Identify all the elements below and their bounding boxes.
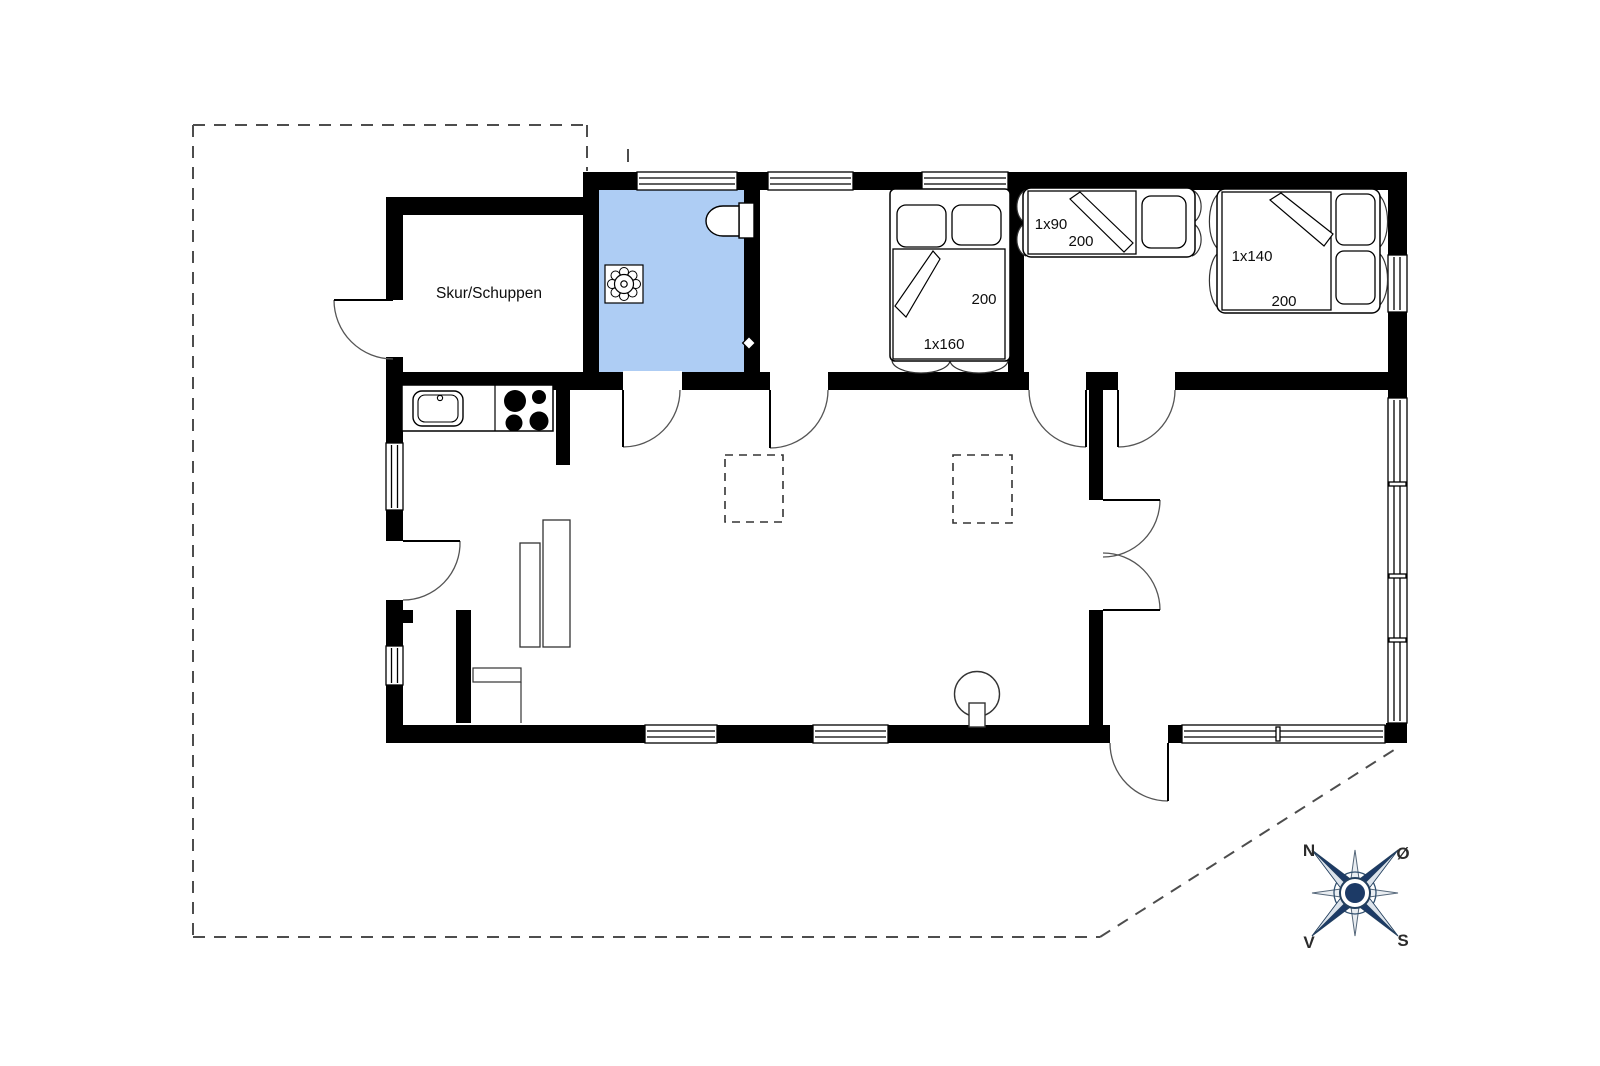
- floor-plan-drawing: Skur/Schuppen 200 1x160 1x90 200: [0, 0, 1600, 1066]
- shed-label: Skur/Schuppen: [436, 285, 542, 302]
- floor-plan-page: Skur/Schuppen 200 1x160 1x90 200: [0, 0, 1600, 1066]
- bed-length-label: 200: [971, 291, 996, 308]
- door-bedroom2: [1029, 390, 1086, 447]
- wall-right-mid: [1388, 312, 1407, 398]
- door-shed-exterior: [334, 300, 393, 359]
- window-mullion: [1389, 482, 1406, 486]
- window-bottom-living-left: [645, 725, 717, 743]
- opening-exterior-door: [1110, 724, 1168, 744]
- mattress-scallop: [892, 360, 950, 373]
- wall-interior-vertical-bottom: [1089, 610, 1103, 727]
- bed-size-label: 1x160: [924, 336, 965, 353]
- window-right-bedroom2: [1388, 255, 1407, 312]
- bed-size-label: 1x140: [1232, 248, 1273, 265]
- wall-entry-vertical: [456, 610, 471, 723]
- kitchen-sink-icon: [413, 391, 463, 426]
- bed-double-160: 200 1x160: [890, 189, 1010, 373]
- window-top-bathroom: [637, 172, 737, 190]
- opening-shed-door: [385, 300, 404, 357]
- window-right-large: [1388, 398, 1407, 723]
- pillow: [897, 205, 946, 247]
- toilet-icon: [706, 203, 754, 238]
- wardrobe: [543, 520, 570, 647]
- pillow: [952, 205, 1001, 245]
- door-bedroom1: [770, 390, 828, 448]
- bed-single-90: 1x90 200: [1017, 188, 1201, 257]
- wall-shed-top: [386, 197, 599, 215]
- double-doors-rightroom: [1103, 500, 1160, 610]
- opening-bedroom2-door: [1029, 371, 1086, 391]
- wardrobe: [520, 543, 540, 647]
- pillow: [1142, 196, 1186, 248]
- living-room-items: [473, 455, 1012, 727]
- window-top-bedroom1-right: [922, 172, 1008, 190]
- compass-label-west: V: [1303, 933, 1315, 952]
- floor-drain-icon: [605, 265, 643, 303]
- door-entry-exterior: [403, 541, 460, 600]
- opening-bath-door: [623, 371, 682, 391]
- door-exterior-south: [1110, 743, 1168, 801]
- door-rightroom-from-bedroom: [1118, 390, 1175, 447]
- pillow: [1336, 194, 1375, 245]
- compass-label-south: S: [1397, 931, 1408, 950]
- window-mullion: [1276, 727, 1280, 741]
- bed-double-140: 1x140 200: [1209, 189, 1387, 313]
- mattress-scallop: [950, 360, 1008, 373]
- compass-label-east: Ø: [1396, 844, 1409, 863]
- wall-bathroom-left: [583, 172, 599, 390]
- wall-interior-vertical-top: [1089, 388, 1103, 500]
- window-left-kitchen: [386, 443, 403, 510]
- opening-bedroom1-door: [770, 371, 828, 391]
- wall-right-top: [1388, 172, 1407, 255]
- window-top-bedroom1-left: [768, 172, 853, 190]
- compass-center-dot: [1345, 883, 1365, 903]
- bed-size-label: 1x90: [1035, 216, 1068, 233]
- opening-entry-door: [385, 541, 404, 600]
- wall-kitchen-stub: [556, 383, 570, 465]
- entry-bench: [473, 668, 521, 682]
- wood-stove-icon: [955, 672, 1000, 728]
- compass-label-north: N: [1303, 841, 1315, 860]
- kitchen-counter: [402, 385, 553, 432]
- compass-rose-icon: N Ø V S: [1303, 841, 1410, 952]
- window-left-entry: [386, 646, 403, 685]
- skylight-dashed: [725, 455, 783, 522]
- window-mullion: [1389, 574, 1406, 578]
- bed-length-label: 200: [1271, 293, 1296, 310]
- skylight-dashed: [953, 455, 1012, 523]
- window-bottom-rightroom: [1182, 725, 1385, 743]
- pillow: [1336, 251, 1375, 304]
- door-bathroom: [623, 390, 680, 447]
- window-mullion: [1389, 638, 1406, 642]
- window-bottom-living-right: [813, 725, 888, 743]
- wall-entry-stub: [390, 610, 413, 623]
- bed-length-label: 200: [1068, 233, 1093, 250]
- opening-rightroom-door: [1118, 371, 1175, 391]
